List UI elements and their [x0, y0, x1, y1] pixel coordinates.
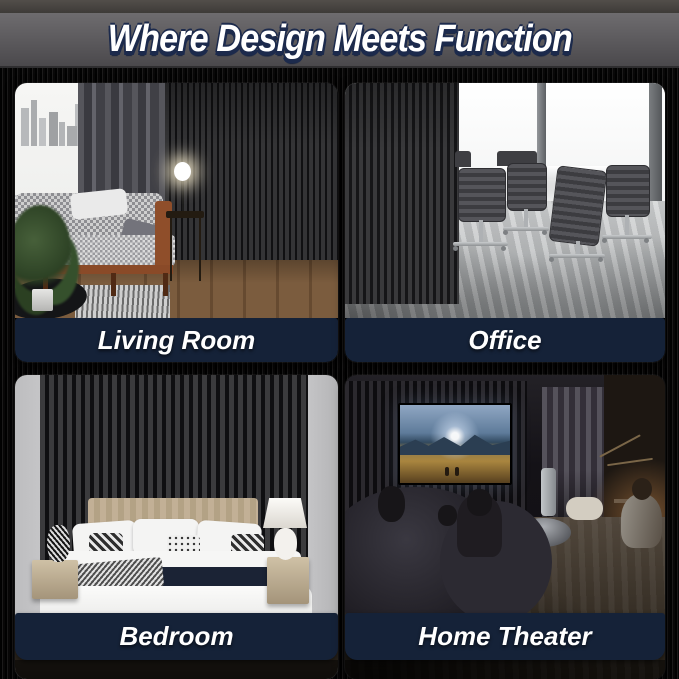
office-chair: [458, 168, 506, 222]
viewer-head: [438, 505, 457, 526]
office-chair: [606, 165, 650, 217]
caster-wheel: [542, 230, 547, 235]
office-chair: [507, 163, 547, 211]
table-lamp-body: [274, 528, 297, 560]
office-chair: [455, 151, 471, 167]
caster-wheel: [549, 257, 554, 262]
side-table-leg: [199, 217, 201, 281]
office-chair: [549, 165, 608, 247]
tower-speaker: [541, 468, 556, 516]
top-edge-strip: [0, 0, 679, 13]
photo-office: [345, 83, 665, 318]
city-skyline: [17, 96, 83, 146]
photo-dim-strip: [15, 660, 338, 679]
slat-wall-panel: [345, 83, 459, 304]
patterned-vase: [47, 525, 70, 562]
tile-home-theater: Home Theater: [345, 375, 665, 679]
tv-figure: [445, 467, 449, 476]
label-text: Home Theater: [418, 621, 591, 652]
plant-vase: [32, 289, 53, 311]
label-living-room: Living Room: [15, 318, 338, 362]
striped-rug: [75, 285, 170, 318]
product-infographic: { "header": { "title": "Where Design Mee…: [0, 0, 679, 679]
lamp-glowing-bulb: [174, 162, 191, 181]
caster-wheel: [602, 238, 607, 243]
label-text: Bedroom: [119, 621, 233, 652]
nightstand: [32, 560, 78, 599]
photo-dim-strip: [345, 660, 665, 679]
title-banner: Where Design Meets Function: [0, 13, 679, 68]
label-text: Living Room: [98, 325, 255, 356]
sofa-leg: [111, 273, 116, 296]
sofa-leg: [163, 273, 168, 296]
caster-wheel: [453, 246, 458, 251]
lamp-pole: [182, 179, 184, 213]
viewer-head: [632, 478, 652, 500]
tv-figure: [455, 467, 459, 476]
tile-living-room: Living Room: [15, 83, 338, 362]
chair-post: [479, 220, 483, 242]
chair-post: [524, 209, 528, 227]
page-title: Where Design Meets Function: [107, 18, 571, 61]
chair-post: [576, 241, 580, 255]
caster-wheel: [598, 257, 603, 262]
chair-base: [549, 254, 605, 258]
label-office: Office: [345, 318, 665, 362]
window-mullion: [649, 83, 662, 213]
caster-wheel: [503, 230, 508, 235]
tile-bedroom: Bedroom: [15, 375, 338, 679]
viewer-head: [378, 486, 405, 522]
photo-living-room: [15, 83, 338, 318]
label-text: Office: [468, 325, 541, 356]
label-home-theater: Home Theater: [345, 613, 665, 660]
caster-wheel: [644, 238, 649, 243]
caster-wheel: [501, 246, 506, 251]
side-table-leg: [170, 217, 172, 281]
tile-office: Office: [345, 83, 665, 362]
viewer-on-floor: [621, 494, 662, 548]
label-bedroom: Bedroom: [15, 613, 338, 660]
viewer-head: [467, 489, 492, 516]
pouf: [566, 497, 603, 520]
nightstand: [267, 557, 309, 604]
table-lamp-shade: [263, 498, 307, 528]
chair-base: [453, 242, 508, 246]
chair-post: [625, 215, 629, 235]
